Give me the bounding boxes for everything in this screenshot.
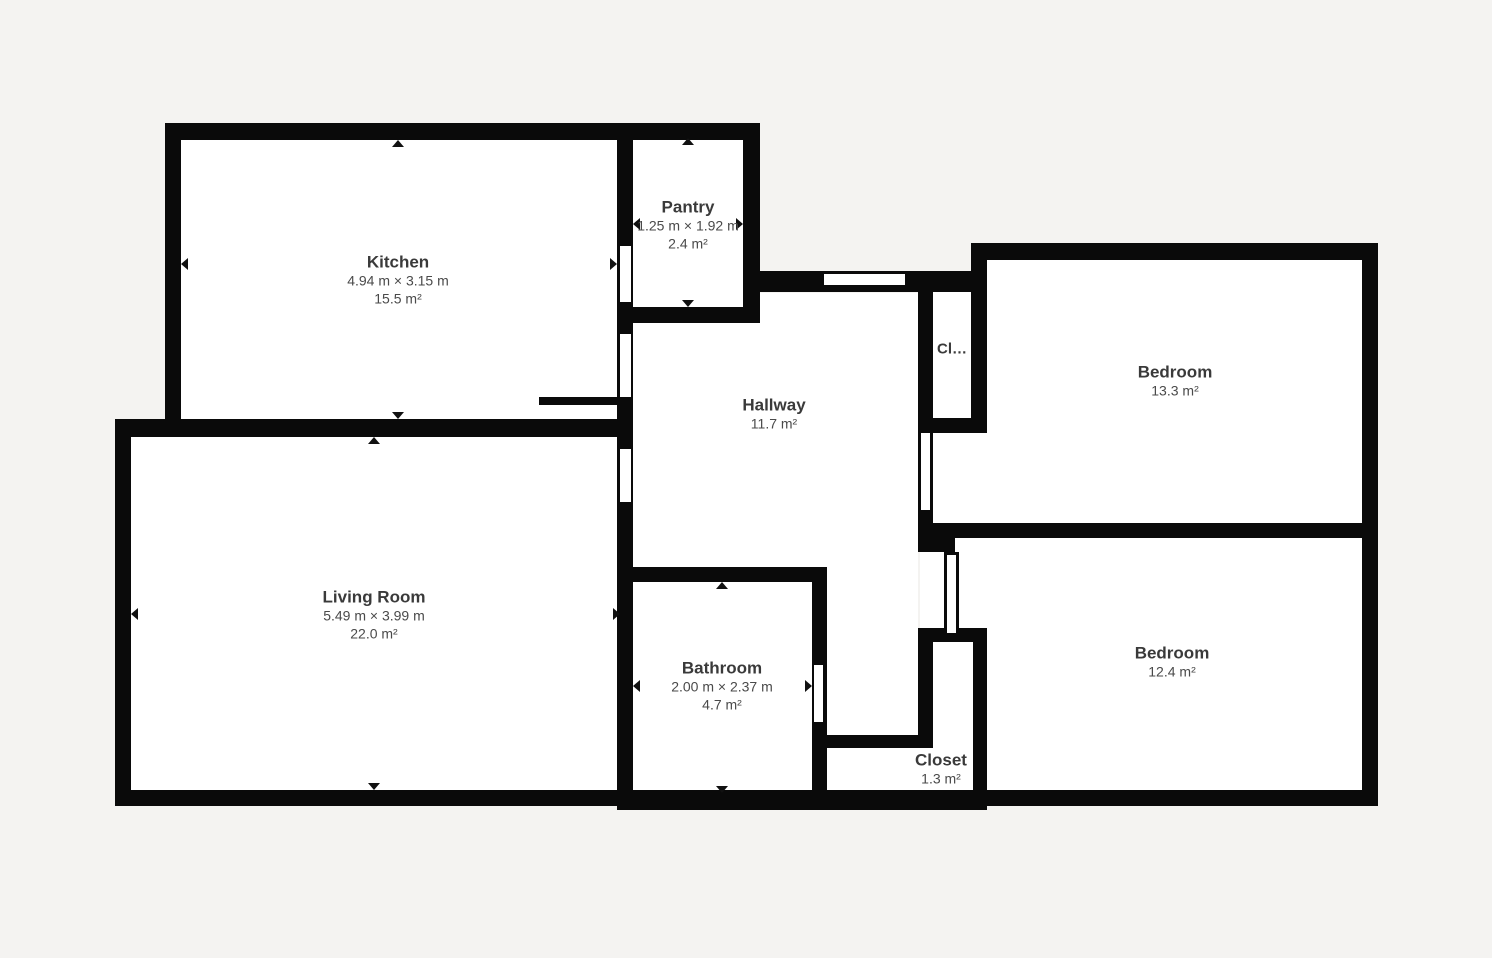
room-name: Cl… — [937, 340, 967, 359]
wall — [115, 419, 131, 806]
room-label-bedroom-1: Bedroom 13.3 m² — [1138, 363, 1213, 400]
floor-plan-canvas: Kitchen 4.94 m × 3.15 m 15.5 m² Pantry 1… — [0, 0, 1492, 958]
wall-stub — [539, 397, 619, 405]
dim-arrow-right-icon — [613, 608, 620, 620]
room-name: Bedroom — [1135, 644, 1210, 663]
door-opening-hallway-bedroom-1[interactable] — [921, 433, 930, 510]
window-hallway[interactable] — [824, 274, 905, 285]
room-name: Kitchen — [347, 253, 449, 272]
wall — [918, 628, 933, 748]
room-dimensions: 2.00 m × 2.37 m — [671, 678, 773, 696]
wall — [743, 123, 760, 323]
room-label-bedroom-2: Bedroom 12.4 m² — [1135, 644, 1210, 681]
dim-arrow-down-icon — [368, 783, 380, 790]
room-floor-bedroom-1[interactable] — [933, 433, 987, 523]
room-area: 13.3 m² — [1138, 382, 1213, 400]
room-area: 4.7 m² — [671, 696, 773, 714]
room-name: Pantry — [637, 198, 739, 217]
room-label-hallway: Hallway 11.7 m² — [742, 396, 805, 433]
room-label-kitchen: Kitchen 4.94 m × 3.15 m 15.5 m² — [347, 253, 449, 308]
dim-arrow-right-icon — [805, 680, 812, 692]
door-opening-living-hallway[interactable] — [620, 449, 631, 502]
wall — [165, 123, 760, 140]
wall — [918, 523, 1378, 538]
room-name: Hallway — [742, 396, 805, 415]
door-opening-kitchen-hallway[interactable] — [620, 334, 631, 397]
room-name: Living Room — [323, 588, 426, 607]
room-area: 11.7 m² — [742, 415, 805, 433]
wall — [115, 790, 1378, 806]
room-label-closet: Closet 1.3 m² — [915, 751, 967, 788]
room-label-living-room: Living Room 5.49 m × 3.99 m 22.0 m² — [323, 588, 426, 643]
wall — [812, 735, 933, 748]
room-area: 1.3 m² — [915, 770, 967, 788]
room-name: Bedroom — [1138, 363, 1213, 382]
dim-arrow-down-icon — [682, 300, 694, 307]
wall — [973, 628, 987, 806]
dim-arrow-up-icon — [682, 138, 694, 145]
room-name: Bathroom — [671, 659, 773, 678]
room-dimensions: 4.94 m × 3.15 m — [347, 272, 449, 290]
wall — [617, 307, 760, 323]
door-opening-kitchen-pantry[interactable] — [620, 246, 631, 302]
dim-arrow-up-icon — [392, 140, 404, 147]
dim-arrow-left-icon — [633, 680, 640, 692]
room-label-closet-small: Cl… — [937, 340, 967, 359]
wall — [971, 243, 987, 433]
room-area: 12.4 m² — [1135, 663, 1210, 681]
dim-arrow-up-icon — [716, 582, 728, 589]
wall — [918, 418, 987, 433]
room-area: 15.5 m² — [347, 290, 449, 308]
room-area: 2.4 m² — [637, 235, 739, 253]
room-name: Closet — [915, 751, 967, 770]
dim-arrow-left-icon — [131, 608, 138, 620]
room-floor-hallway[interactable] — [827, 567, 918, 735]
wall — [918, 523, 955, 552]
dim-arrow-down-icon — [392, 412, 404, 419]
wall — [971, 243, 1378, 260]
wall — [115, 419, 633, 437]
room-label-bathroom: Bathroom 2.00 m × 2.37 m 4.7 m² — [671, 659, 773, 714]
room-dimensions: 1.25 m × 1.92 m — [637, 217, 739, 235]
room-label-pantry: Pantry 1.25 m × 1.92 m 2.4 m² — [637, 198, 739, 253]
dim-arrow-down-icon — [716, 786, 728, 793]
room-dimensions: 5.49 m × 3.99 m — [323, 607, 426, 625]
dim-arrow-left-icon — [181, 258, 188, 270]
door-leaf-closet[interactable] — [944, 552, 959, 636]
room-area: 22.0 m² — [323, 625, 426, 643]
dim-arrow-up-icon — [368, 437, 380, 444]
dim-arrow-right-icon — [610, 258, 617, 270]
wall — [617, 567, 827, 582]
wall — [165, 123, 181, 435]
door-opening-bathroom[interactable] — [814, 665, 823, 722]
